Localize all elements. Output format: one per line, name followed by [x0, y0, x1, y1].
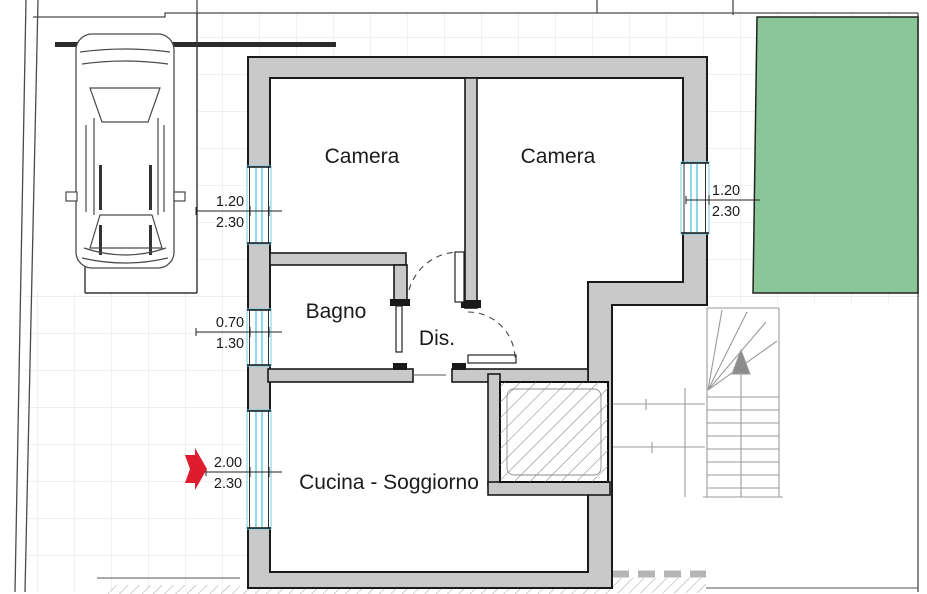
wall-between-bedrooms	[465, 78, 477, 308]
room-label-cucina: Cucina - Soggiorno	[299, 471, 479, 494]
window-camera-right	[681, 162, 709, 234]
dim-height: 2.30	[712, 204, 740, 220]
room-label-dis: Dis.	[419, 327, 455, 350]
cucina-door-leaf	[468, 355, 516, 363]
wall-shaft-bottom	[488, 482, 610, 495]
wall-bagno-top	[270, 253, 406, 265]
dim-height: 2.30	[214, 476, 242, 492]
dim-width: 1.20	[712, 183, 740, 199]
dim-width: 0.70	[216, 315, 244, 331]
dim-height: 1.30	[216, 336, 244, 352]
garden-area	[753, 17, 918, 293]
window-bagno	[247, 309, 271, 366]
room-label-bagno: Bagno	[306, 300, 367, 323]
camera-door-swing-arc	[409, 252, 459, 290]
floor-plan-canvas: 1.20 2.30 0.70 1.30 2.00 2.30 1.20 2.30 …	[0, 0, 927, 594]
staircase	[612, 308, 783, 497]
dim-width: 1.20	[216, 194, 244, 210]
bagno-door-leaf	[396, 306, 402, 352]
room-label-camera-right: Camera	[521, 145, 596, 168]
cucina-door-swing-arc	[468, 312, 515, 359]
camera-door-leaf	[455, 252, 464, 302]
wall-shaft-left	[488, 374, 500, 486]
wall-bagno-bottom	[268, 369, 413, 382]
wall-dis-south	[452, 369, 588, 382]
window-camera-left	[247, 166, 271, 244]
interior-doors	[390, 252, 516, 370]
stairwell-shaft	[500, 382, 608, 482]
floor-plan-page: 1.20 2.30 0.70 1.30 2.00 2.30 1.20 2.30 …	[0, 0, 927, 594]
room-label-camera-left: Camera	[325, 145, 400, 168]
car-icon	[66, 34, 185, 268]
dim-height: 2.30	[216, 215, 244, 231]
entrance-door	[247, 410, 271, 529]
bagno-door-jamb	[390, 299, 410, 306]
dim-width: 2.00	[214, 455, 242, 471]
